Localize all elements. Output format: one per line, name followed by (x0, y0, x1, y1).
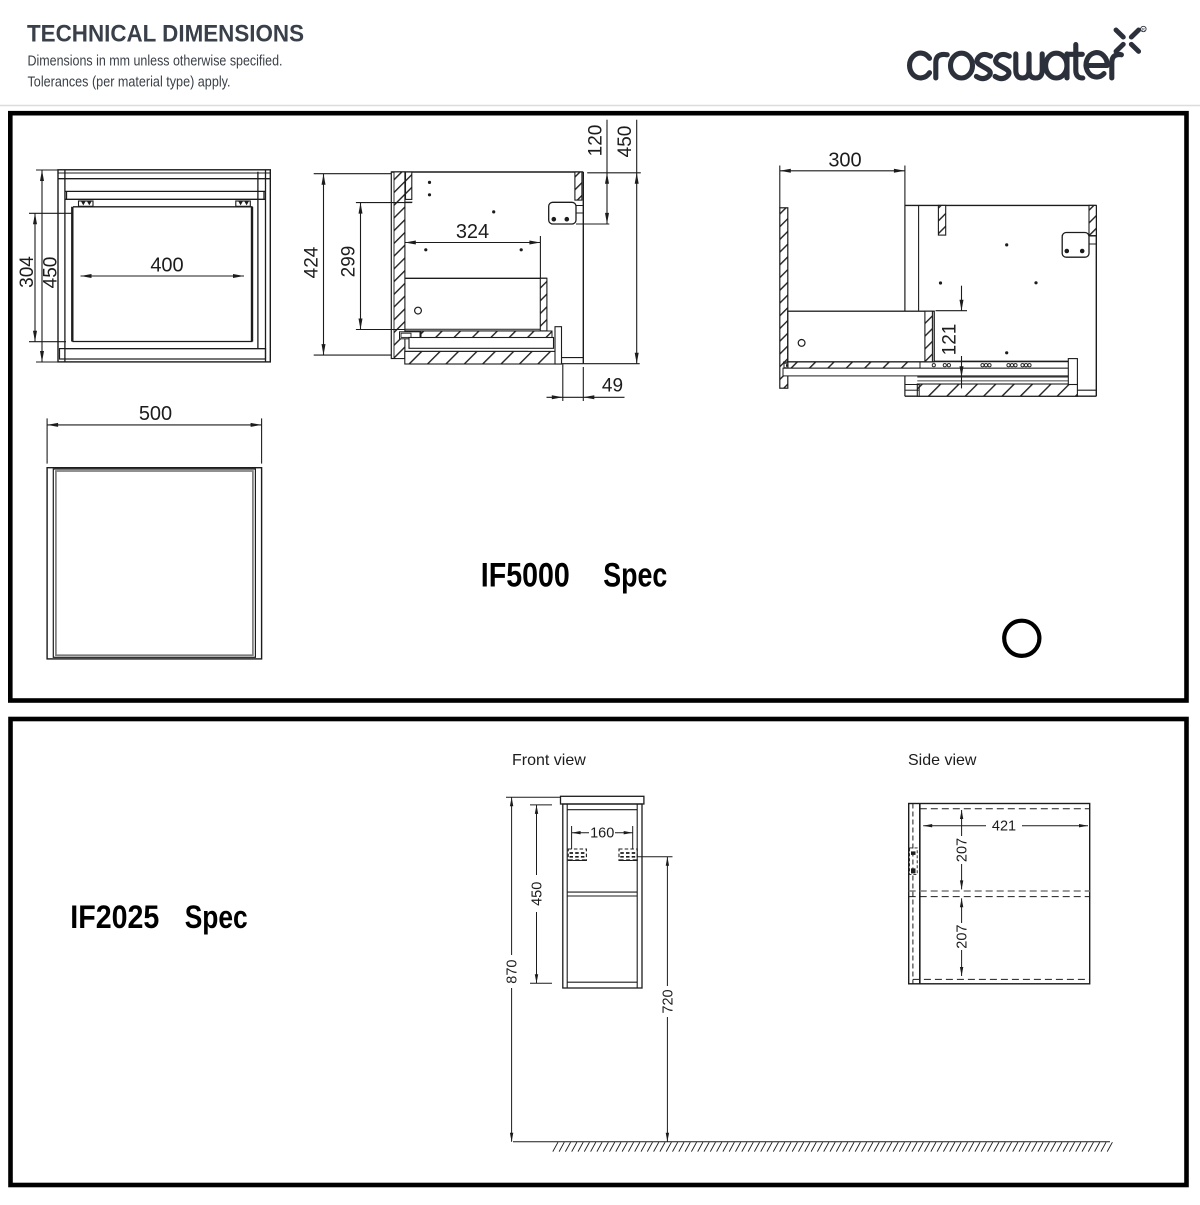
svg-text:450: 450 (615, 126, 636, 158)
svg-text:720: 720 (660, 989, 676, 1013)
svg-text:450: 450 (41, 257, 62, 289)
svg-text:Side view: Side view (908, 752, 977, 769)
svg-text:500: 500 (139, 403, 172, 425)
svg-text:Front view: Front view (512, 752, 586, 769)
svg-text:IF2025: IF2025 (70, 899, 159, 935)
svg-text:304: 304 (17, 256, 38, 288)
svg-text:400: 400 (150, 255, 183, 277)
svg-text:421: 421 (992, 819, 1016, 835)
svg-text:Dimensions in mm unless otherw: Dimensions in mm unless otherwise specif… (28, 54, 283, 70)
svg-text:120: 120 (586, 125, 607, 157)
svg-text:207: 207 (955, 924, 971, 948)
svg-text:424: 424 (302, 246, 323, 278)
svg-text:R: R (1142, 27, 1145, 32)
svg-text:Spec: Spec (603, 557, 667, 595)
svg-text:300: 300 (828, 150, 861, 172)
svg-text:Tolerances (per material type): Tolerances (per material type) apply. (28, 75, 231, 91)
svg-text:299: 299 (339, 246, 360, 278)
svg-text:IF5000: IF5000 (481, 557, 570, 595)
svg-text:450: 450 (530, 882, 546, 906)
svg-text:207: 207 (955, 838, 971, 862)
svg-text:324: 324 (456, 221, 489, 243)
svg-text:Spec: Spec (185, 899, 248, 935)
svg-text:TECHNICAL DIMENSIONS: TECHNICAL DIMENSIONS (27, 21, 304, 48)
svg-text:49: 49 (602, 376, 623, 397)
svg-text:121: 121 (939, 324, 960, 356)
svg-text:870: 870 (505, 959, 521, 983)
svg-text:160: 160 (590, 825, 614, 841)
